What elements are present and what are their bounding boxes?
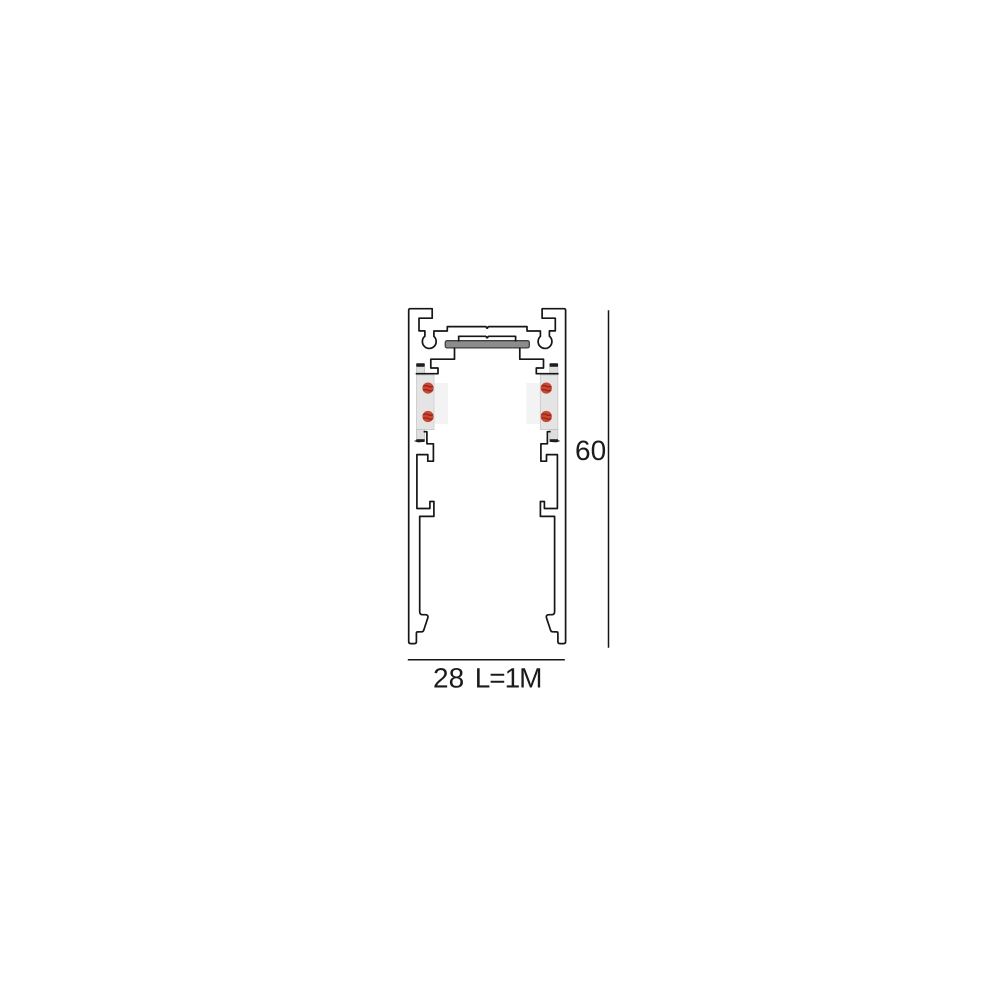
svg-text:L=1M: L=1M xyxy=(475,663,542,694)
svg-text:28: 28 xyxy=(433,663,464,694)
svg-text:60: 60 xyxy=(575,435,606,466)
